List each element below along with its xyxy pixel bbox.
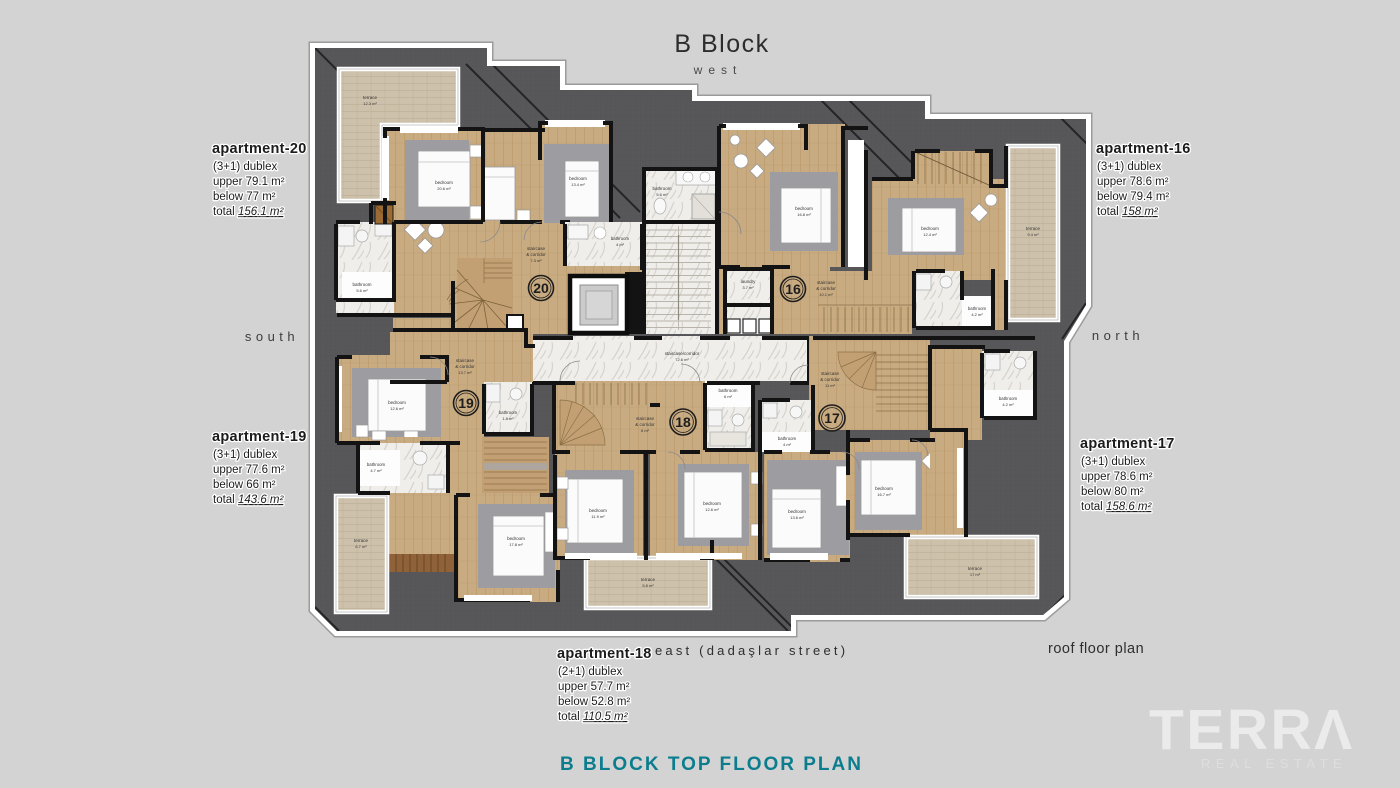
svg-text:13.7 m²: 13.7 m²	[458, 370, 472, 375]
svg-text:apartment-19: apartment-19	[212, 429, 307, 445]
svg-text:1.8 m²: 1.8 m²	[502, 416, 514, 421]
svg-text:6 m²: 6 m²	[641, 428, 650, 433]
svg-text:upper 57.7 m²: upper 57.7 m²	[558, 681, 630, 693]
svg-text:13.6 m²: 13.6 m²	[790, 515, 804, 520]
svg-text:& corridor: & corridor	[816, 286, 836, 291]
svg-text:4.2 m²: 4.2 m²	[1002, 402, 1014, 407]
svg-text:apartment-17: apartment-17	[1080, 436, 1175, 452]
svg-text:bedroom: bedroom	[388, 400, 406, 405]
svg-text:(3+1) dublex: (3+1) dublex	[1097, 161, 1161, 173]
svg-text:(3+1) dublex: (3+1) dublex	[213, 449, 277, 461]
svg-text:12.4 m²: 12.4 m²	[923, 232, 937, 237]
svg-text:bedroom: bedroom	[435, 180, 453, 185]
svg-text:total 156.1 m²: total 156.1 m²	[213, 206, 284, 218]
svg-text:TERRΛ: TERRΛ	[1149, 698, 1355, 762]
svg-text:B Block: B Block	[674, 30, 769, 58]
svg-text:(2+1) dublex: (2+1) dublex	[558, 666, 622, 678]
svg-text:10.1 m²: 10.1 m²	[819, 292, 833, 297]
svg-text:16.7 m²: 16.7 m²	[877, 492, 891, 497]
svg-text:below 80 m²: below 80 m²	[1081, 486, 1144, 498]
svg-text:bedroom: bedroom	[921, 226, 939, 231]
svg-text:west: west	[693, 63, 743, 77]
svg-text:below 77 m²: below 77 m²	[213, 191, 276, 203]
svg-text:& corridor: & corridor	[635, 422, 655, 427]
svg-text:upper 77.6 m²: upper 77.6 m²	[213, 464, 285, 476]
svg-text:staircase: staircase	[817, 280, 836, 285]
svg-text:apartment-20: apartment-20	[212, 141, 307, 157]
svg-text:6.7 m²: 6.7 m²	[355, 544, 367, 549]
svg-text:bedroom: bedroom	[589, 508, 607, 513]
svg-text:& corridor: & corridor	[526, 252, 546, 257]
svg-text:bedroom: bedroom	[795, 206, 813, 211]
svg-text:(3+1) dublex: (3+1) dublex	[213, 161, 277, 173]
svg-text:bedroom: bedroom	[875, 486, 893, 491]
svg-text:bedroom: bedroom	[703, 501, 721, 506]
svg-text:staircase/corridor: staircase/corridor	[665, 351, 700, 356]
svg-text:4 m²: 4 m²	[783, 442, 792, 447]
svg-text:REAL ESTATE: REAL ESTATE	[1201, 756, 1347, 771]
svg-text:terrace: terrace	[968, 566, 983, 571]
svg-text:16.8 m²: 16.8 m²	[797, 212, 811, 217]
svg-text:9.4 m²: 9.4 m²	[1027, 232, 1039, 237]
svg-text:total 143.6 m²: total 143.6 m²	[213, 494, 284, 506]
svg-text:terrace: terrace	[1026, 226, 1041, 231]
svg-text:staircase: staircase	[527, 246, 546, 251]
svg-text:5.8 m²: 5.8 m²	[642, 583, 654, 588]
svg-text:terrace: terrace	[363, 95, 378, 100]
svg-text:11 m²: 11 m²	[825, 383, 836, 388]
svg-text:total 158.6 m²: total 158.6 m²	[1081, 501, 1152, 513]
svg-text:below 52.8 m²: below 52.8 m²	[558, 696, 630, 708]
svg-text:4.7 m²: 4.7 m²	[370, 468, 382, 473]
svg-text:bathroom: bathroom	[352, 282, 371, 287]
svg-text:upper 78.6 m²: upper 78.6 m²	[1097, 176, 1169, 188]
svg-text:bathroom: bathroom	[652, 186, 671, 191]
svg-text:terrace: terrace	[354, 538, 369, 543]
svg-text:staircase: staircase	[636, 416, 655, 421]
svg-text:4 m²: 4 m²	[616, 242, 625, 247]
svg-text:7.3 m²: 7.3 m²	[530, 258, 542, 263]
svg-text:12.3 m²: 12.3 m²	[363, 101, 377, 106]
svg-text:17 m²: 17 m²	[970, 572, 981, 577]
svg-text:south: south	[245, 329, 299, 344]
svg-text:17.8 m²: 17.8 m²	[509, 542, 523, 547]
svg-text:laundry: laundry	[741, 279, 757, 284]
svg-text:below 66 m²: below 66 m²	[213, 479, 276, 491]
svg-text:11.9 m²: 11.9 m²	[591, 514, 605, 519]
svg-text:total 110.5 m²: total 110.5 m²	[558, 711, 629, 723]
svg-text:upper 78.6 m²: upper 78.6 m²	[1081, 471, 1153, 483]
svg-text:staircase: staircase	[456, 358, 475, 363]
svg-text:bedroom: bedroom	[569, 176, 587, 181]
svg-text:north: north	[1092, 328, 1144, 343]
svg-text:B BLOCK TOP FLOOR PLAN: B BLOCK TOP FLOOR PLAN	[560, 754, 863, 775]
svg-text:20.6 m²: 20.6 m²	[437, 186, 451, 191]
svg-text:upper 79.1 m²: upper 79.1 m²	[213, 176, 285, 188]
svg-text:bathroom: bathroom	[968, 306, 987, 311]
svg-text:bathroom: bathroom	[999, 396, 1018, 401]
svg-text:roof floor plan: roof floor plan	[1048, 641, 1144, 657]
svg-text:13.4 m²: 13.4 m²	[571, 182, 585, 187]
svg-text:19: 19	[458, 395, 474, 411]
svg-text:total 158 m²: total 158 m²	[1097, 206, 1159, 218]
svg-text:apartment-16: apartment-16	[1096, 141, 1191, 157]
svg-text:staircase: staircase	[821, 371, 840, 376]
svg-text:terrace: terrace	[641, 577, 656, 582]
svg-text:bathroom: bathroom	[499, 410, 518, 415]
svg-text:bathroom: bathroom	[611, 236, 630, 241]
svg-text:4.2 m²: 4.2 m²	[971, 312, 983, 317]
svg-text:& corridor: & corridor	[455, 364, 475, 369]
svg-text:bathroom: bathroom	[367, 462, 386, 467]
svg-text:3.7 m²: 3.7 m²	[742, 285, 754, 290]
svg-text:bedroom: bedroom	[507, 536, 525, 541]
svg-text:bedroom: bedroom	[788, 509, 806, 514]
svg-text:18: 18	[675, 414, 691, 430]
svg-text:6 m²: 6 m²	[724, 394, 733, 399]
svg-text:bathroom: bathroom	[778, 436, 797, 441]
svg-text:5.6 m²: 5.6 m²	[656, 192, 668, 197]
svg-text:bathroom: bathroom	[718, 388, 737, 393]
svg-text:20: 20	[533, 280, 549, 296]
svg-text:(3+1) dublex: (3+1) dublex	[1081, 456, 1145, 468]
svg-text:east (dadaşlar street): east (dadaşlar street)	[655, 643, 848, 658]
svg-text:& corridor: & corridor	[820, 377, 840, 382]
svg-text:12.6 m²: 12.6 m²	[705, 507, 719, 512]
svg-text:below 79.4 m²: below 79.4 m²	[1097, 191, 1169, 203]
svg-text:72.6 m²: 72.6 m²	[675, 357, 689, 362]
svg-text:5.6 m²: 5.6 m²	[356, 288, 368, 293]
svg-text:12.6 m²: 12.6 m²	[390, 406, 404, 411]
svg-text:apartment-18: apartment-18	[557, 646, 652, 662]
svg-text:16: 16	[785, 281, 801, 297]
svg-text:17: 17	[824, 410, 840, 426]
